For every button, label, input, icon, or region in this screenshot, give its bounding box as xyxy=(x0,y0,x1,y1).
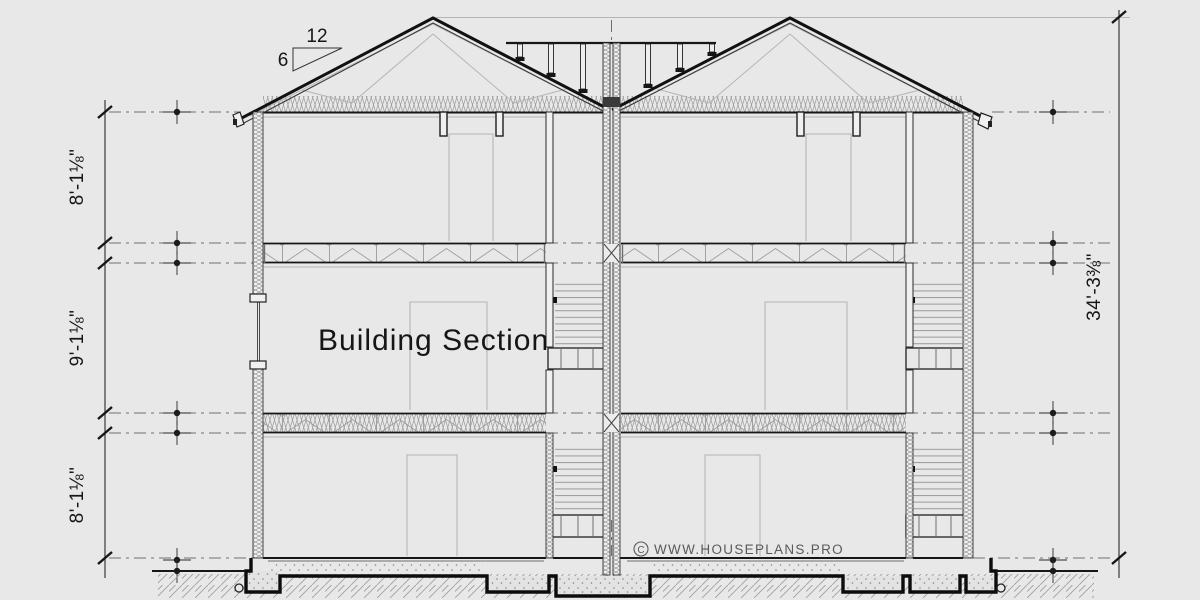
dim-floor1-height: 8'-1⅛" xyxy=(67,467,88,524)
watermark-text: WWW.HOUSEPLANS.PRO xyxy=(654,542,844,557)
watermark: C WWW.HOUSEPLANS.PRO xyxy=(634,542,844,557)
window-head xyxy=(250,294,266,302)
window-sill xyxy=(250,361,266,369)
building-section-drawing: 12 6 8'-1⅛" 9'-1⅛" 8'-1⅛" 34'-3⅜" Buildi… xyxy=(0,0,1200,600)
pitch-rise-label: 6 xyxy=(278,50,289,71)
drawing-title: Building Section xyxy=(318,324,549,357)
copyright-symbol: C xyxy=(637,545,644,556)
dim-overall-height: 34'-3⅜" xyxy=(1084,253,1105,321)
valley-blocking xyxy=(603,97,620,107)
drain-pipe-right xyxy=(997,584,1005,592)
dim-floor3-height: 8'-1⅛" xyxy=(67,149,88,206)
exterior-wall-right xyxy=(963,112,973,558)
building-section-page: 12 6 8'-1⅛" 9'-1⅛" 8'-1⅛" 34'-3⅜" Buildi… xyxy=(0,0,1200,600)
dim-floor2-height: 9'-1⅛" xyxy=(67,310,88,367)
pitch-run-label: 12 xyxy=(306,26,327,47)
window-opening xyxy=(252,294,264,364)
drain-pipe-left xyxy=(235,584,243,592)
